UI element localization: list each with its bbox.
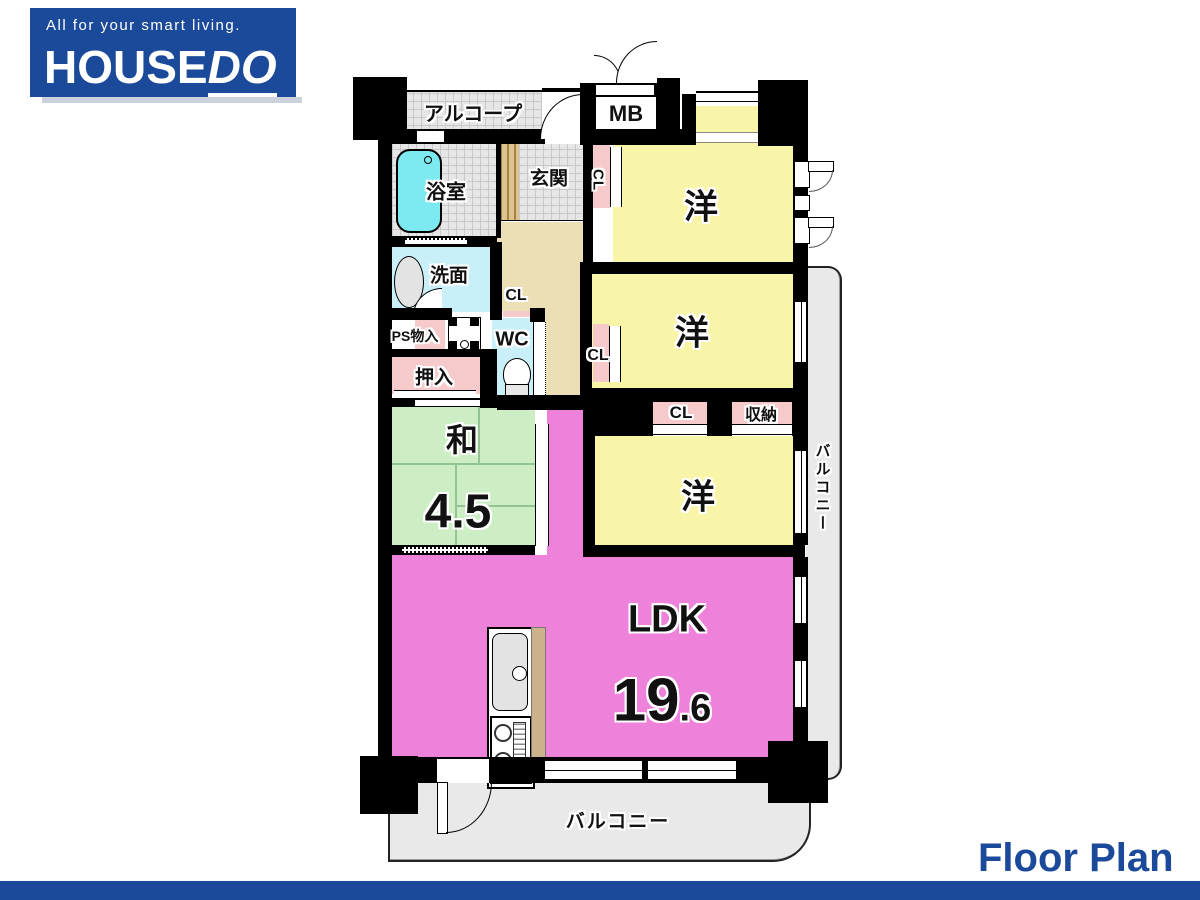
housedo-logo: All for your smart living. HOUSEDO xyxy=(30,8,296,97)
balcony-window-2 xyxy=(793,451,808,533)
japanese-room-size: 4.5 xyxy=(425,485,492,540)
alcove-label: アルコープ xyxy=(424,98,522,127)
ps-storage-label: PS物入 xyxy=(392,326,439,346)
counter-backing xyxy=(531,627,546,773)
logo-shadow xyxy=(42,97,302,103)
wall xyxy=(682,94,696,132)
closet-room3-label: CL xyxy=(670,403,693,423)
casement-arc-2 xyxy=(809,226,833,248)
western-room-3-label: 洋 xyxy=(681,470,715,519)
logo-brand-main: HOUSE xyxy=(44,41,208,93)
ldk-window-2 xyxy=(648,759,736,781)
balcony-window-1 xyxy=(793,302,808,362)
wall xyxy=(580,129,696,145)
futon-closet-label: 押入 xyxy=(415,363,453,390)
western-room-1-label: 洋 xyxy=(684,180,718,229)
footer-bar xyxy=(0,881,1200,900)
wall xyxy=(583,143,593,262)
balcony-bottom-label: バルコニー xyxy=(566,807,671,834)
stove-burner-1 xyxy=(494,724,512,742)
floor-plan-page: All for your smart living. HOUSEDO バルコニー… xyxy=(0,0,1200,900)
wall xyxy=(360,756,418,814)
closet-room1-label: CL xyxy=(590,169,607,191)
western-room-1-closet-door xyxy=(610,147,622,207)
ldk-size-int: 19 xyxy=(613,667,680,734)
balcony-window-3 xyxy=(793,577,808,623)
pipe-space-dot xyxy=(460,340,469,349)
logo-brand-accent: DO xyxy=(208,41,277,97)
japanese-room-label: 和 xyxy=(446,415,478,461)
mb-door-right xyxy=(616,41,657,83)
entrance-label: 玄関 xyxy=(530,164,568,191)
washroom-label: 洗面 xyxy=(430,261,468,288)
wall xyxy=(392,129,545,144)
wall xyxy=(392,308,452,320)
wall xyxy=(758,80,808,146)
western-room-2-closet-door xyxy=(609,326,621,382)
wall xyxy=(580,262,808,274)
closet-3-door xyxy=(653,424,707,435)
ldk-label: LDK xyxy=(628,599,706,642)
kitchen-faucet xyxy=(512,666,527,681)
ldk-window-1 xyxy=(545,759,642,781)
logo-tagline: All for your smart living. xyxy=(46,17,241,34)
ldk-size-dec: .6 xyxy=(680,688,712,730)
ldk-area xyxy=(390,555,793,760)
wall xyxy=(583,545,805,557)
wall xyxy=(490,242,502,320)
bay-window-recess xyxy=(696,106,758,132)
storage-label: 収納 xyxy=(745,401,777,425)
ldk-arm xyxy=(547,409,583,559)
mb-hatch xyxy=(594,83,656,97)
wc-door xyxy=(533,322,546,395)
entrance-door xyxy=(540,94,583,139)
japanese-room-slider xyxy=(535,424,549,546)
wall xyxy=(496,143,501,238)
storage-door xyxy=(732,424,792,435)
balcony-window-4 xyxy=(793,661,808,707)
hallway-lower xyxy=(545,311,583,399)
wall xyxy=(656,78,680,132)
wall xyxy=(530,308,545,322)
ldk-size: 19.6 xyxy=(613,666,711,735)
wall xyxy=(378,131,392,764)
bathroom-label: 浴室 xyxy=(426,176,466,205)
wall xyxy=(583,402,595,557)
casement-arc-1 xyxy=(809,170,833,192)
toilet-label: WC xyxy=(495,329,528,352)
bay-window-inner xyxy=(696,132,758,143)
wall xyxy=(707,400,732,436)
bathtub-drain xyxy=(424,156,432,164)
wall xyxy=(580,274,592,388)
entrance-step xyxy=(500,144,519,222)
balcony-right-label: バルコニー xyxy=(812,443,833,533)
closet-room2-label: CL xyxy=(587,347,608,365)
floor-plan-title: Floor Plan xyxy=(978,836,1174,881)
hall-closet-label: CL xyxy=(505,287,526,305)
wall xyxy=(768,741,828,803)
western-room-2-label: 洋 xyxy=(675,306,709,355)
wall xyxy=(542,88,584,92)
meter-box-label: MB xyxy=(609,101,643,127)
